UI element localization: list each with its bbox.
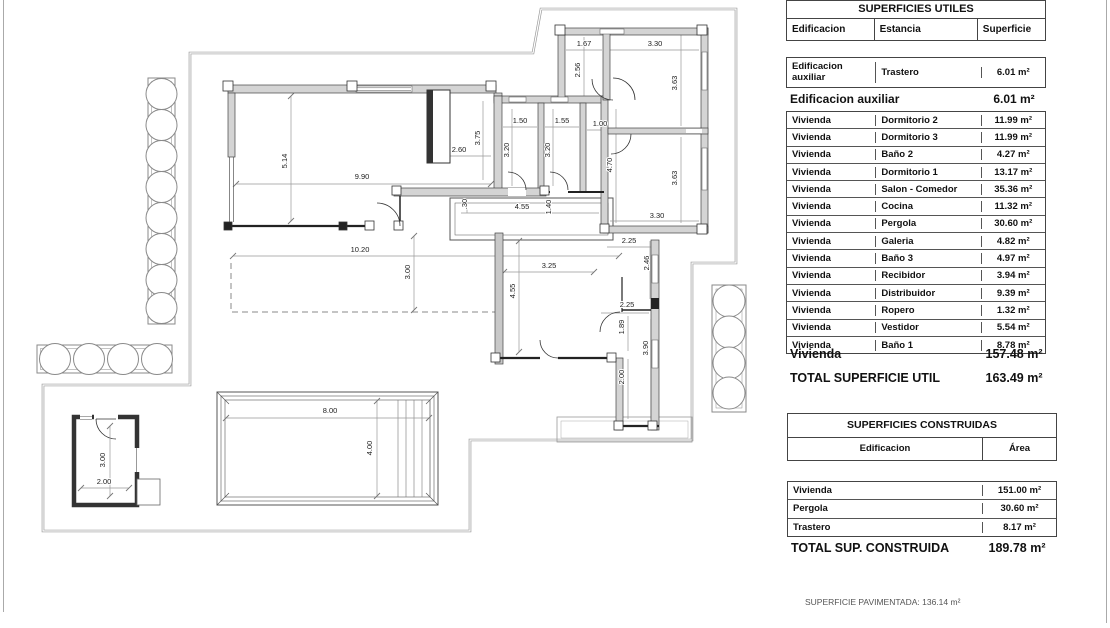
planter-left bbox=[146, 78, 177, 324]
dimension-label: 4.70 bbox=[605, 158, 614, 173]
trastero-porch bbox=[137, 479, 160, 505]
dimension-label: 1.55 bbox=[555, 116, 570, 125]
chimney bbox=[427, 90, 450, 163]
dimension-label: 2.25 bbox=[622, 236, 637, 245]
dimension-label: 3.63 bbox=[670, 76, 679, 91]
subtotal-label: Edificacion auxiliar bbox=[786, 92, 982, 106]
cell-estancia: Ropero bbox=[876, 305, 981, 316]
cell-edificacion: Edificacion auxiliar bbox=[787, 62, 876, 83]
utiles-title: SUPERFICIES UTILES bbox=[787, 1, 1045, 19]
cell-estancia: Distribuidor bbox=[876, 288, 981, 299]
cell-edificacion: Vivienda bbox=[787, 270, 876, 281]
cell-superficie: 11.99 m² bbox=[982, 115, 1045, 126]
sheet-border-right bbox=[1106, 0, 1107, 623]
cell-superficie: 9.39 m² bbox=[982, 288, 1045, 299]
tree-icon bbox=[146, 203, 177, 234]
utiles-header-box: SUPERFICIES UTILES Edificacion Estancia … bbox=[786, 0, 1046, 41]
dimension-label: .30 bbox=[460, 199, 469, 209]
table-row: Vivienda Baño 2 4.27 m² bbox=[787, 147, 1045, 164]
cell-superficie: 4.27 m² bbox=[982, 149, 1045, 160]
cell-edificacion: Vivienda bbox=[787, 184, 876, 195]
cell-estancia: Baño 3 bbox=[876, 253, 981, 264]
tree-icon bbox=[146, 172, 177, 203]
cell-estancia: Dormitorio 3 bbox=[876, 132, 981, 143]
table-row: Vivienda Vestidor 5.54 m² bbox=[787, 320, 1045, 337]
cell-estancia: Galeria bbox=[876, 236, 981, 247]
table-row: Vivienda 151.00 m² bbox=[788, 482, 1056, 500]
vivienda-subtotal-row: Vivienda 157.48 m² bbox=[786, 342, 1046, 365]
dimension-label: 3.00 bbox=[403, 265, 412, 280]
dimension-label: 5.14 bbox=[280, 154, 289, 169]
tree-icon bbox=[146, 234, 177, 265]
table-row: Vivienda Ropero 1.32 m² bbox=[787, 302, 1045, 319]
cell-estancia: Dormitorio 1 bbox=[876, 167, 981, 178]
table-row: Vivienda Baño 3 4.97 m² bbox=[787, 250, 1045, 267]
tree-icon bbox=[713, 316, 745, 348]
table-row: Pergola 30.60 m² bbox=[788, 500, 1056, 518]
table-row: Trastero 8.17 m² bbox=[788, 519, 1056, 536]
tree-icon bbox=[146, 293, 177, 324]
subtotal-value: 157.48 m² bbox=[982, 347, 1046, 361]
floor-plan-area: 5.149.902.603.7510.203.001.501.551.003.2… bbox=[0, 0, 786, 623]
cell-edificacion: Vivienda bbox=[787, 305, 876, 316]
cell-edificacion: Vivienda bbox=[787, 132, 876, 143]
cell-estancia: Recibidor bbox=[876, 270, 981, 281]
table-row: Edificacion auxiliar Trastero 6.01 m² bbox=[787, 58, 1045, 87]
cell-superficie: 6.01 m² bbox=[982, 67, 1045, 78]
tree-icon bbox=[713, 377, 745, 409]
dimension-label: 3.00 bbox=[98, 453, 107, 468]
total-construida-row: TOTAL SUP. CONSTRUIDA 189.78 m² bbox=[787, 535, 1057, 560]
cell-superficie: 13.17 m² bbox=[982, 167, 1045, 178]
dimension-label: 3.75 bbox=[473, 131, 482, 146]
cell-estancia: Trastero bbox=[876, 67, 981, 78]
tree-icon bbox=[74, 344, 105, 375]
dimension-label: 1.67 bbox=[577, 39, 592, 48]
cell-superficie: 30.60 m² bbox=[982, 218, 1045, 229]
table-row: Vivienda Salon - Comedor 35.36 m² bbox=[787, 181, 1045, 198]
cell-edificacion: Vivienda bbox=[787, 322, 876, 333]
dimension-label: 9.90 bbox=[355, 172, 370, 181]
aux-subtotal-row: Edificacion auxiliar 6.01 m² bbox=[786, 88, 1046, 110]
dimension-label: 8.00 bbox=[323, 406, 338, 415]
table-row: Vivienda Galeria 4.82 m² bbox=[787, 233, 1045, 250]
construidas-header-box: SUPERFICIES CONSTRUIDAS Edificacion Área bbox=[787, 413, 1057, 461]
dimension-label: 2.60 bbox=[452, 145, 467, 154]
tree-icon bbox=[142, 344, 173, 375]
terrace-outline bbox=[557, 417, 692, 442]
tree-icon bbox=[146, 265, 177, 296]
cell-edificacion: Vivienda bbox=[787, 288, 876, 299]
dimension-label: 2.00 bbox=[617, 370, 626, 385]
cell-estancia: Dormitorio 2 bbox=[876, 115, 981, 126]
cell-edificacion: Vivienda bbox=[787, 167, 876, 178]
col-header-edificacion: Edificacion bbox=[788, 438, 983, 460]
cell-edificacion: Vivienda bbox=[787, 218, 876, 229]
trastero-building bbox=[74, 413, 160, 505]
dimension-label: 2.46 bbox=[642, 256, 651, 271]
dimension-label: 1.00 bbox=[593, 119, 608, 128]
table-row: Vivienda Distribuidor 9.39 m² bbox=[787, 285, 1045, 302]
cell-area: 8.17 m² bbox=[983, 522, 1056, 533]
table-row: Vivienda Recibidor 3.94 m² bbox=[787, 268, 1045, 285]
cell-edificacion: Pergola bbox=[788, 503, 983, 514]
superficies-utiles-table: SUPERFICIES UTILES Edificacion Estancia … bbox=[786, 0, 1046, 41]
dimension-label: 4.55 bbox=[515, 202, 530, 211]
dimension-label: 4.00 bbox=[365, 441, 374, 456]
tree-icon bbox=[713, 347, 745, 379]
cell-edificacion: Trastero bbox=[788, 522, 983, 533]
table-row: Vivienda Dormitorio 2 11.99 m² bbox=[787, 112, 1045, 129]
dimension-label: 2.56 bbox=[573, 63, 582, 78]
cell-area: 151.00 m² bbox=[983, 485, 1056, 496]
col-header-area: Área bbox=[983, 438, 1056, 460]
galeria-glazing bbox=[450, 198, 613, 240]
cell-estancia: Cocina bbox=[876, 201, 981, 212]
cell-estancia: Vestidor bbox=[876, 322, 981, 333]
table-row: Vivienda Dormitorio 3 11.99 m² bbox=[787, 129, 1045, 146]
cell-edificacion: Vivienda bbox=[787, 115, 876, 126]
cell-superficie: 35.36 m² bbox=[982, 184, 1045, 195]
superficies-construidas-table: SUPERFICIES CONSTRUIDAS Edificacion Área… bbox=[787, 413, 1057, 461]
col-header-estancia: Estancia bbox=[875, 19, 978, 40]
construidas-title: SUPERFICIES CONSTRUIDAS bbox=[788, 414, 1056, 438]
cell-superficie: 5.54 m² bbox=[982, 322, 1045, 333]
cell-estancia: Salon - Comedor bbox=[876, 184, 981, 195]
cell-area: 30.60 m² bbox=[983, 503, 1056, 514]
wall-solid-segment bbox=[651, 298, 659, 309]
utiles-main-grid: Vivienda Dormitorio 2 11.99 m² Vivienda … bbox=[786, 111, 1046, 354]
total-label: TOTAL SUPERFICIE UTIL bbox=[786, 371, 982, 385]
tree-icon bbox=[146, 141, 177, 172]
cell-superficie: 3.94 m² bbox=[982, 270, 1045, 281]
cell-edificacion: Vivienda bbox=[787, 201, 876, 212]
cell-superficie: 4.97 m² bbox=[982, 253, 1045, 264]
floor-plan-drawing: 5.149.902.603.7510.203.001.501.551.003.2… bbox=[0, 0, 786, 623]
dimension-label: 3.30 bbox=[650, 211, 665, 220]
dimension-label: 1.50 bbox=[513, 116, 528, 125]
planter-right bbox=[712, 285, 746, 412]
table-row: Vivienda Cocina 11.32 m² bbox=[787, 198, 1045, 215]
dimension-label: 1.89 bbox=[617, 320, 626, 335]
cell-superficie: 4.82 m² bbox=[982, 236, 1045, 247]
tree-icon bbox=[108, 344, 139, 375]
total-label: TOTAL SUP. CONSTRUIDA bbox=[787, 541, 977, 555]
cell-estancia: Baño 2 bbox=[876, 149, 981, 160]
table-row: Vivienda Pergola 30.60 m² bbox=[787, 216, 1045, 233]
total-util-row: TOTAL SUPERFICIE UTIL 163.49 m² bbox=[786, 366, 1046, 389]
dimension-label: 3.20 bbox=[543, 143, 552, 158]
cell-edificacion: Vivienda bbox=[787, 149, 876, 160]
dimension-label: 2.00 bbox=[97, 477, 112, 486]
dimension-label: 3.25 bbox=[542, 261, 557, 270]
dimension-label: 2.25 bbox=[620, 300, 635, 309]
col-header-edificacion: Edificacion bbox=[787, 19, 875, 40]
total-value: 163.49 m² bbox=[982, 371, 1046, 385]
cell-edificacion: Vivienda bbox=[787, 236, 876, 247]
total-value: 189.78 m² bbox=[977, 541, 1057, 555]
col-header-superficie: Superficie bbox=[978, 19, 1045, 40]
tree-icon bbox=[713, 285, 745, 317]
cell-edificacion: Vivienda bbox=[787, 253, 876, 264]
dimension-label: 3.90 bbox=[641, 341, 650, 356]
table-row: Vivienda Dormitorio 1 13.17 m² bbox=[787, 164, 1045, 181]
paved-surface-note: SUPERFICIE PAVIMENTADA: 136.14 m² bbox=[805, 597, 960, 607]
cell-edificacion: Vivienda bbox=[788, 485, 983, 496]
dimension-label: 3.30 bbox=[648, 39, 663, 48]
construidas-grid: Vivienda 151.00 m² Pergola 30.60 m² Tras… bbox=[787, 481, 1057, 537]
tree-icon bbox=[146, 110, 177, 141]
subtotal-value: 6.01 m² bbox=[982, 92, 1046, 106]
subtotal-label: Vivienda bbox=[786, 347, 982, 361]
tree-icon bbox=[40, 344, 71, 375]
cell-superficie: 11.99 m² bbox=[982, 132, 1045, 143]
planter-bottom bbox=[37, 344, 173, 375]
cell-estancia: Pergola bbox=[876, 218, 981, 229]
utiles-aux-grid: Edificacion auxiliar Trastero 6.01 m² bbox=[786, 57, 1046, 88]
thin-walls bbox=[228, 157, 659, 426]
cell-superficie: 1.32 m² bbox=[982, 305, 1045, 316]
dimension-label: 3.63 bbox=[670, 171, 679, 186]
dimension-label: 4.55 bbox=[508, 284, 517, 299]
cell-superficie: 11.32 m² bbox=[982, 201, 1045, 212]
dimension-label: 1.40 bbox=[544, 200, 553, 215]
dimension-label: 10.20 bbox=[351, 245, 370, 254]
tree-icon bbox=[146, 79, 177, 110]
dimension-label: 3.20 bbox=[502, 143, 511, 158]
pergola-dashed-outline bbox=[231, 263, 497, 312]
